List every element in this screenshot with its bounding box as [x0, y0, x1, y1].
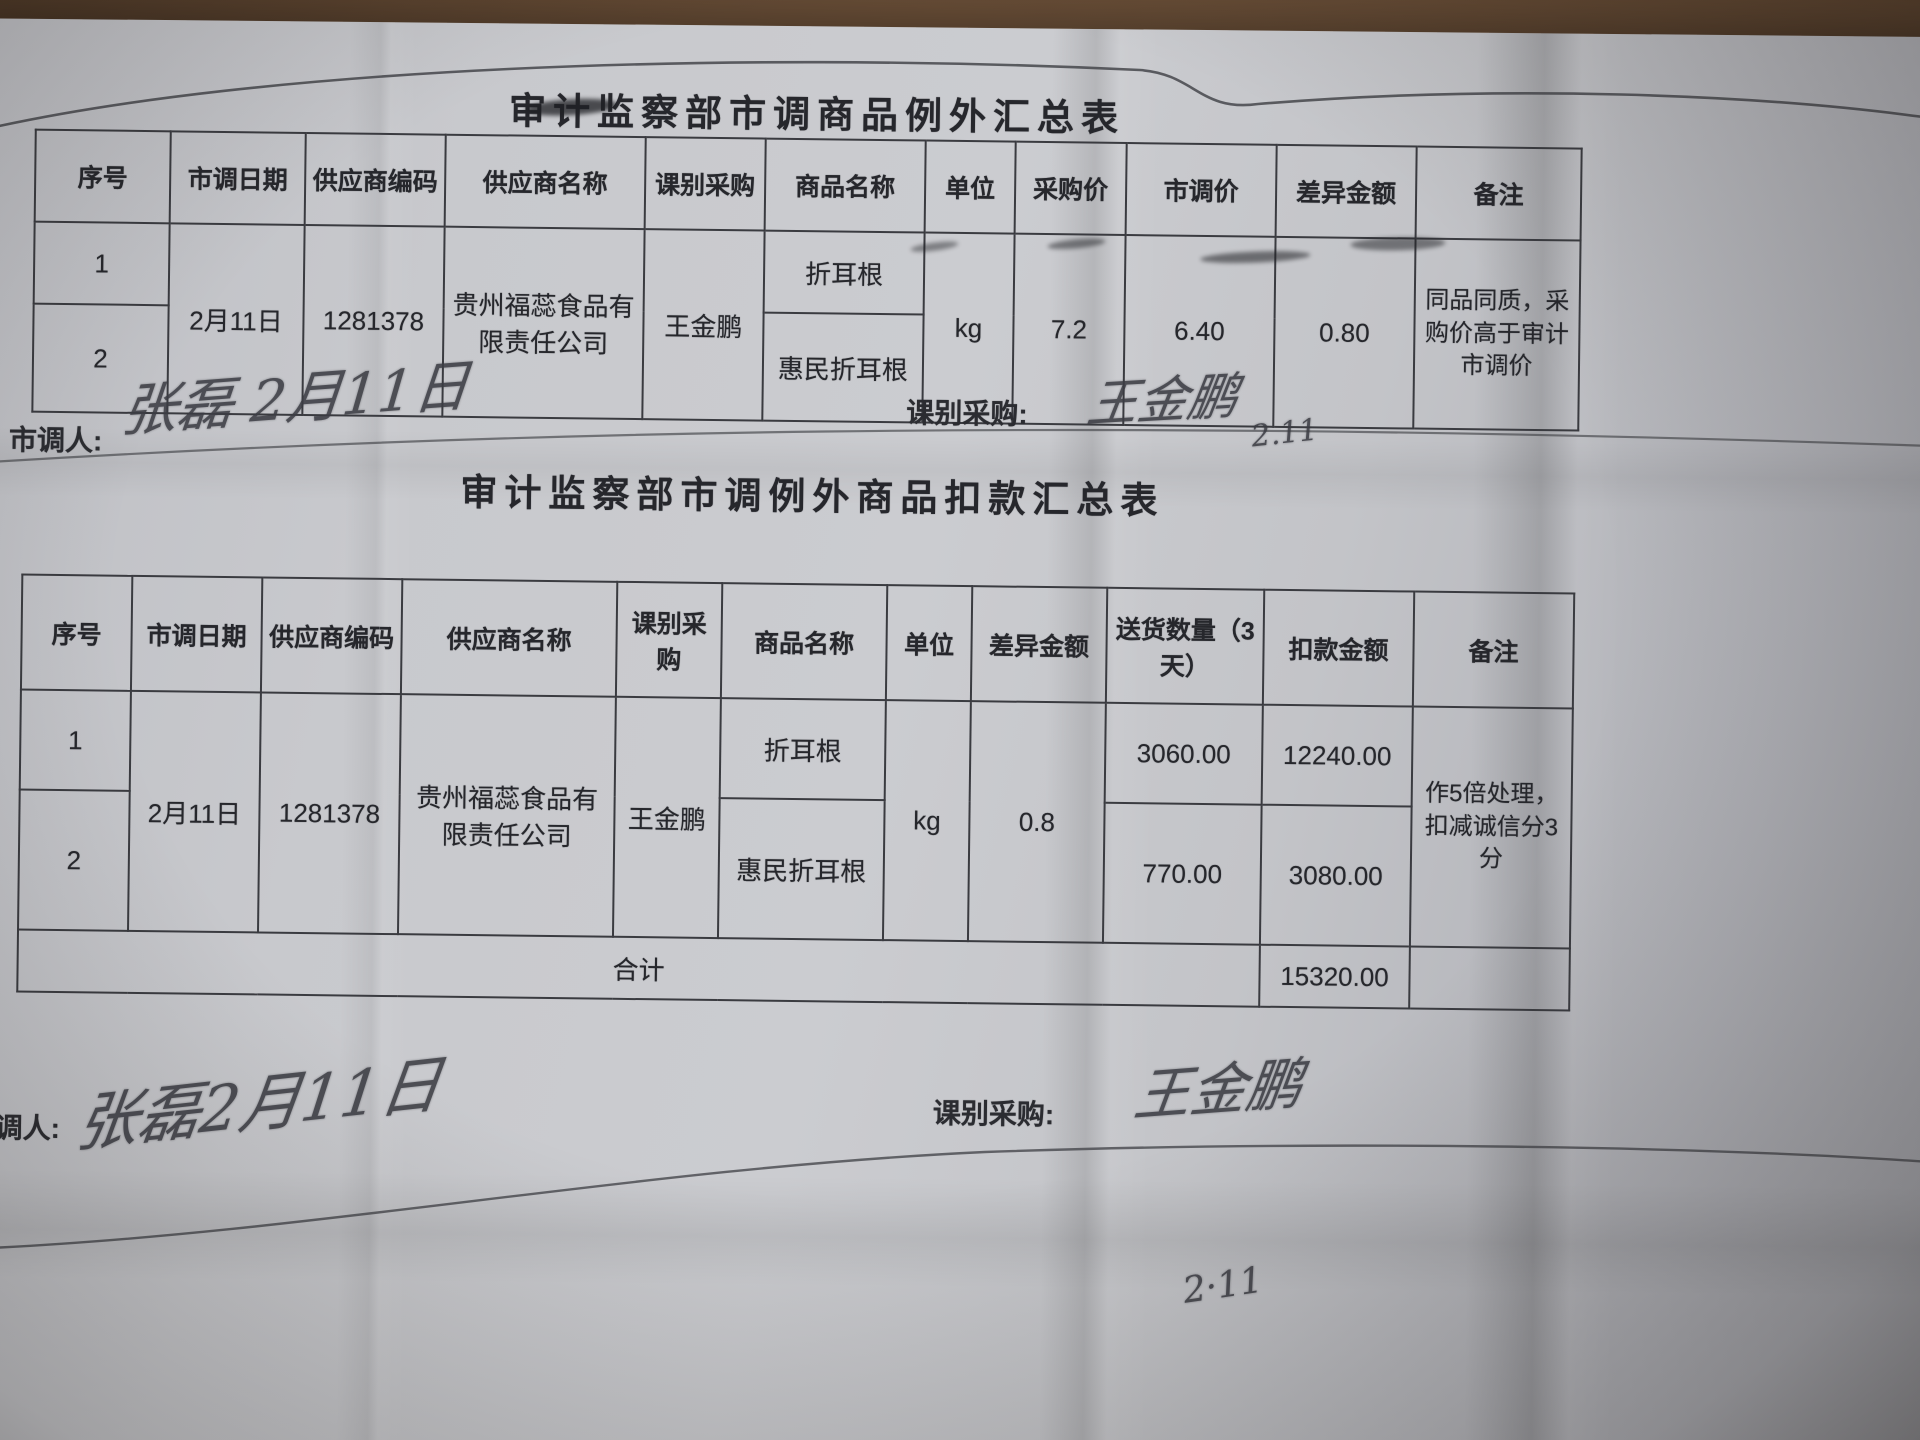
surveyor-label-1: 市调人:	[9, 418, 103, 459]
buyer-handwritten-date-2: 2·11	[1180, 1260, 1265, 1312]
t1-supplier-name: 贵州福蕊食品有限责任公司	[442, 227, 644, 419]
t2-buyer: 王金鹏	[613, 697, 721, 938]
buyer-label-2: 课别采购:	[933, 1092, 1055, 1133]
t2-total-deduction: 15320.00	[1259, 945, 1410, 1009]
t2-product-2: 惠民折耳根	[718, 798, 885, 940]
buyer-handwritten-date-1: 2.11	[1249, 412, 1319, 454]
t1-remark: 同品同质，采购价高于审计市调价	[1413, 239, 1580, 431]
table1-row-1: 1 2月11日 1281378 贵州福蕊食品有限责任公司 王金鹏 折耳根 kg …	[34, 222, 1581, 323]
surveyor-handwritten-signature-2: 张磊2月11日	[72, 1032, 449, 1164]
t1-header-product: 商品名称	[765, 139, 926, 233]
t1-header-seq: 序号	[35, 130, 171, 224]
photo-of-document: 审计监察部市调商品例外汇总表 序号 市调日期 供应商编码 供应商名称 课别采购 …	[0, 0, 1920, 1440]
t1-header-supplier-code: 供应商编码	[305, 133, 446, 227]
t2-qty-2: 770.00	[1103, 803, 1262, 945]
t2-unit: kg	[883, 700, 971, 941]
surveyor-label-2: 调人:	[0, 1106, 60, 1147]
buyer-handwritten-signature-2: 王金鹏	[1130, 1038, 1309, 1133]
exception-goods-deduction-summary-table: 序号 市调日期 供应商编码 供应商名称 课别采购 商品名称 单位 差异金额 送货…	[16, 574, 1575, 1012]
t1-header-remark: 备注	[1416, 147, 1582, 241]
t2-seq-2: 2	[18, 790, 130, 931]
t2-diff-amount: 0.8	[968, 701, 1106, 943]
table2-header-row: 序号 市调日期 供应商编码 供应商名称 课别采购 商品名称 单位 差异金额 送货…	[21, 575, 1574, 709]
t2-header-unit: 单位	[886, 585, 972, 701]
t1-product-1: 折耳根	[764, 231, 925, 315]
t2-date: 2月11日	[128, 691, 261, 933]
t2-total-remark-empty	[1409, 947, 1570, 1011]
buyer-handwritten-signature-1: 王金鹏	[1083, 356, 1244, 437]
t2-supplier-code: 1281378	[258, 692, 401, 934]
t1-header-supplier-name: 供应商名称	[445, 135, 646, 229]
t2-header-deduction: 扣款金额	[1263, 590, 1414, 707]
t2-seq-1: 1	[20, 690, 131, 791]
t1-header-market-price: 市调价	[1126, 143, 1277, 237]
t2-header-supplier-name: 供应商名称	[401, 579, 617, 697]
t1-header-date: 市调日期	[170, 131, 306, 225]
t2-header-date: 市调日期	[131, 576, 262, 693]
t2-product-1: 折耳根	[720, 698, 886, 800]
t1-seq-1: 1	[34, 222, 170, 306]
t1-diff-amount: 0.80	[1273, 237, 1415, 429]
t1-buyer: 王金鹏	[642, 229, 764, 420]
table2-row-1: 1 2月11日 1281378 贵州福蕊食品有限责任公司 王金鹏 折耳根 kg …	[20, 690, 1573, 809]
t1-header-unit: 单位	[925, 141, 1016, 234]
t2-header-buyer: 课别采购	[616, 582, 722, 698]
t2-header-product: 商品名称	[721, 583, 887, 700]
t2-deduction-1: 12240.00	[1262, 705, 1413, 807]
t1-header-purchase-price: 采购价	[1015, 142, 1127, 235]
t2-deduction-2: 3080.00	[1260, 805, 1412, 947]
t2-header-delivery-qty: 送货数量（3天）	[1106, 588, 1264, 705]
t1-product-2: 惠民折耳根	[762, 313, 923, 423]
t2-header-supplier-code: 供应商编码	[261, 577, 402, 694]
document-content: 审计监察部市调商品例外汇总表 序号 市调日期 供应商编码 供应商名称 课别采购 …	[0, 0, 1920, 1440]
t2-supplier-name: 贵州福蕊食品有限责任公司	[398, 694, 616, 937]
t2-qty-1: 3060.00	[1105, 703, 1263, 805]
t2-remark: 作5倍处理，扣减诚信分3分	[1410, 707, 1573, 949]
t1-header-buyer: 课别采购	[645, 137, 766, 230]
table2-title: 审计监察部市调例外商品扣款汇总表	[2, 456, 1623, 530]
t2-header-seq: 序号	[21, 575, 132, 691]
buyer-label-1: 课别采购:	[906, 391, 1028, 432]
t1-header-diff-amount: 差异金额	[1276, 145, 1417, 239]
t2-header-diff-amount: 差异金额	[971, 586, 1107, 703]
t2-header-remark: 备注	[1413, 592, 1574, 709]
